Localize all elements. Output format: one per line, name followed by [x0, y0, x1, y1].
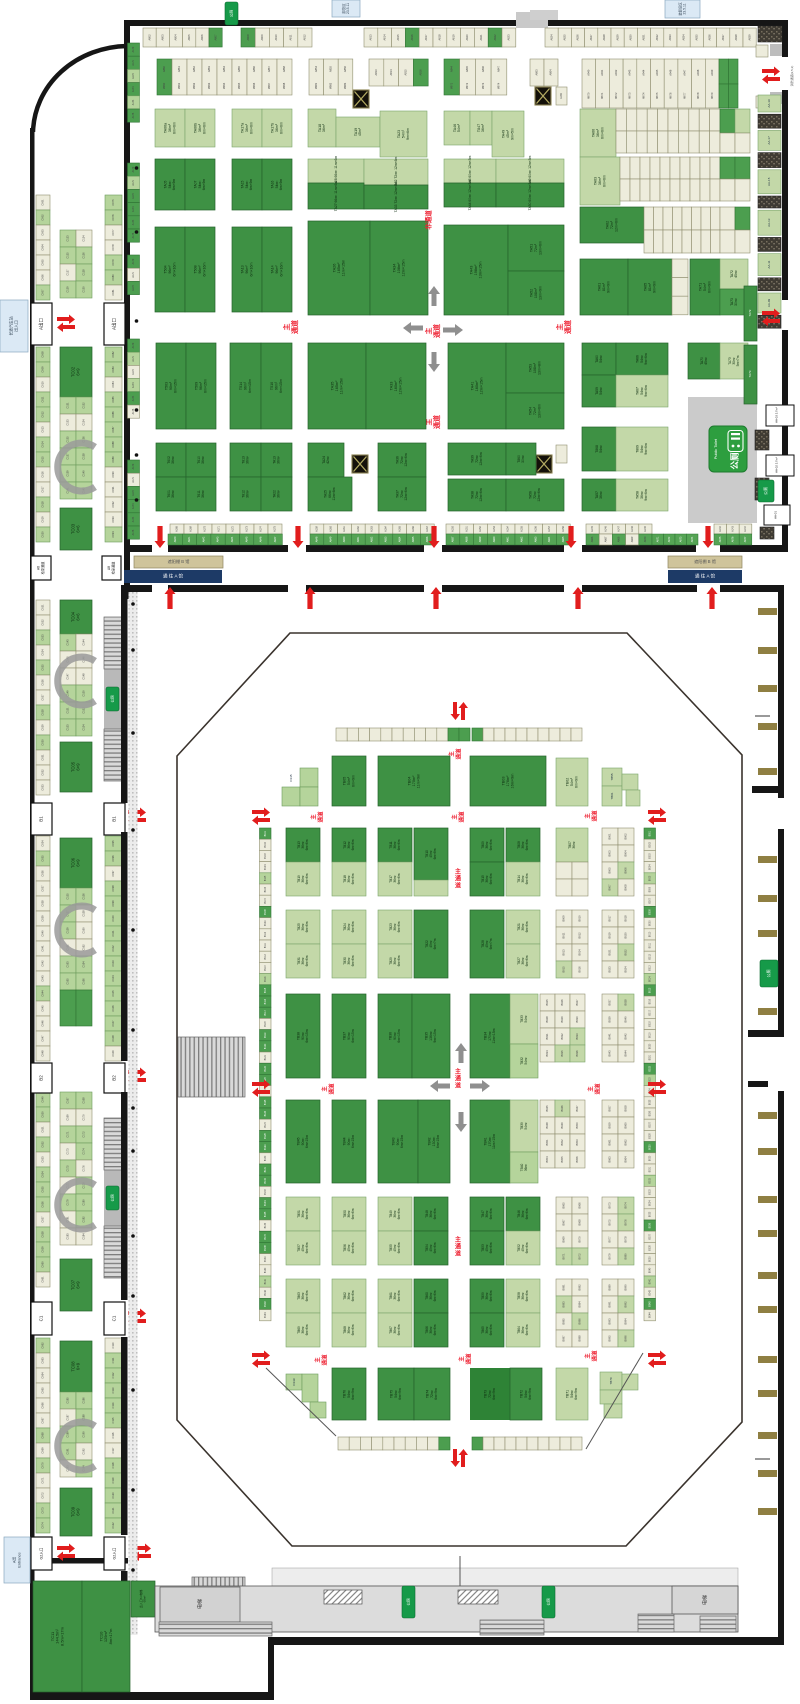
svg-text:6m×?m: 6m×?m: [433, 938, 437, 949]
svg-text:6m×16m: 6m×16m: [202, 262, 206, 276]
svg-text:T504: T504: [164, 265, 168, 273]
svg-text:36m²: 36m²: [171, 455, 175, 464]
svg-text:A663: A663: [534, 536, 537, 542]
svg-text:C075: C075: [111, 199, 115, 206]
svg-text:B073: B073: [608, 1202, 612, 1209]
svg-text:通 往 A 馆: 通 往 A 馆: [695, 573, 716, 580]
svg-text:C066: C066: [41, 1402, 45, 1409]
svg-text:C143: C143: [66, 639, 70, 646]
svg-text:C015: C015: [41, 456, 45, 463]
svg-text:B074: B074: [624, 1202, 628, 1209]
svg-text:A162: A162: [357, 526, 360, 532]
svg-text:96m²: 96m²: [199, 381, 203, 390]
svg-text:B051: B051: [545, 1139, 549, 1146]
svg-text:M991: M991: [177, 82, 181, 89]
svg-text:C023: C023: [41, 634, 45, 641]
svg-text:A942: A942: [614, 69, 618, 76]
svg-text:B106: B106: [265, 886, 267, 892]
svg-text:B122: B122: [265, 1065, 267, 1071]
svg-text:通道: 通道: [316, 811, 324, 823]
svg-text:A648: A648: [316, 536, 319, 542]
svg-text:A644: A644: [231, 536, 234, 542]
svg-text:C174: C174: [82, 1148, 86, 1155]
svg-text:B120: B120: [265, 1043, 267, 1049]
svg-text:C022: C022: [41, 619, 45, 626]
svg-text:54m²: 54m²: [599, 444, 603, 453]
svg-text:A172: A172: [132, 73, 135, 79]
svg-text:6m×6m: 6m×6m: [433, 1324, 437, 1335]
svg-text:B055: B055: [560, 1156, 564, 1163]
svg-text:C035: C035: [41, 855, 45, 862]
svg-text:B040: B040: [649, 1267, 651, 1273]
svg-text:A845: A845: [465, 65, 469, 72]
svg-text:C173: C173: [66, 1148, 70, 1155]
svg-text:A947: A947: [682, 69, 686, 76]
svg-text:B035: B035: [649, 1211, 651, 1217]
svg-text:B075: B075: [608, 1219, 612, 1226]
svg-text:6m×9m: 6m×9m: [528, 1388, 532, 1400]
svg-text:B056: B056: [575, 1156, 579, 1163]
svg-text:T508: T508: [194, 265, 198, 273]
svg-text:C058: C058: [41, 1231, 45, 1238]
svg-text:C025: C025: [41, 664, 45, 671]
svg-text:遮阳棚 B 馆: 遮阳棚 B 馆: [694, 558, 716, 565]
svg-text:通道: 通道: [320, 1354, 328, 1366]
svg-text:C031: C031: [41, 754, 45, 761]
svg-text:96m²: 96m²: [275, 265, 279, 274]
svg-text:B030: B030: [649, 1155, 651, 1161]
svg-text:C095: C095: [111, 840, 115, 847]
svg-text:B084: B084: [578, 1301, 582, 1308]
svg-text:6m×15m: 6m×15m: [248, 379, 252, 393]
svg-text:A642: A642: [202, 536, 205, 542]
svg-text:11m×15m: 11m×15m: [342, 260, 346, 277]
svg-text:A144: A144: [744, 526, 747, 532]
svg-text:B024: B024: [624, 966, 628, 973]
svg-text:B041: B041: [608, 1033, 612, 1040]
svg-text:C085: C085: [111, 396, 115, 403]
svg-text:A660: A660: [493, 536, 496, 542]
svg-text:C073: C073: [41, 1507, 45, 1514]
svg-text:B019: B019: [649, 1032, 651, 1038]
svg-text:108m²: 108m²: [397, 262, 401, 273]
svg-text:M996: M996: [252, 82, 256, 89]
svg-text:C162: C162: [82, 944, 86, 951]
svg-text:C038: C038: [41, 900, 45, 907]
svg-text:6m×6m: 6m×6m: [202, 122, 206, 134]
svg-text:B006: B006: [624, 867, 628, 874]
svg-text:C024: C024: [41, 649, 45, 656]
svg-text:TA72: TA72: [748, 309, 752, 316]
svg-text:B005: B005: [649, 875, 651, 881]
svg-text:A867: A867: [267, 65, 271, 72]
svg-text:A862: A862: [192, 65, 196, 72]
svg-text:B079: B079: [608, 1253, 612, 1260]
svg-text:C097: C097: [111, 870, 115, 877]
svg-text:AA-13: AA-13: [767, 218, 771, 227]
svg-text:B089: B089: [608, 1284, 612, 1291]
svg-text:B023: B023: [608, 966, 612, 973]
svg-text:A813: A813: [374, 69, 378, 76]
svg-text:D135: D135: [289, 774, 293, 782]
svg-text:C008: C008: [41, 351, 45, 358]
svg-text:A155: A155: [521, 526, 524, 532]
svg-text:C044: C044: [41, 990, 45, 997]
svg-text:A170: A170: [204, 526, 207, 532]
svg-text:通道: 通道: [593, 1083, 601, 1095]
svg-text:A170: A170: [132, 258, 135, 264]
svg-text:TA17b: TA17b: [271, 123, 275, 133]
svg-text:公厕: 公厕: [729, 452, 739, 470]
svg-text:B087: B087: [562, 1335, 566, 1342]
svg-text:C056: C056: [41, 1201, 45, 1208]
svg-text:B043: B043: [649, 1301, 651, 1307]
svg-text:A624: A624: [549, 34, 553, 41]
svg-text:AA-11: AA-11: [767, 260, 771, 268]
svg-text:81m²: 81m²: [648, 282, 652, 291]
svg-text:9m×6m: 9m×6m: [644, 353, 648, 365]
svg-text:6m×6m: 6m×6m: [351, 1290, 355, 1301]
svg-text:6m×6m: 6m×6m: [489, 1324, 493, 1335]
svg-text:54m²: 54m²: [524, 1015, 528, 1022]
svg-text:B111: B111: [265, 942, 267, 948]
svg-text:A168: A168: [176, 526, 179, 532]
svg-text:B114: B114: [265, 976, 267, 982]
svg-text:B126: B126: [265, 1110, 267, 1116]
svg-text:B090: B090: [624, 1284, 628, 1291]
svg-text:A173: A173: [132, 86, 135, 92]
svg-text:C153: C153: [66, 724, 70, 731]
svg-text:C067: C067: [41, 1417, 45, 1424]
svg-text:C098: C098: [111, 885, 115, 892]
svg-text:A617: A617: [424, 34, 428, 41]
svg-text:C109: C109: [111, 1050, 115, 1057]
svg-text:A151: A151: [465, 526, 468, 532]
svg-text:165m²: 165m²: [335, 380, 339, 391]
svg-text:TA13: TA13: [241, 265, 245, 273]
svg-text:6m×9m: 6m×9m: [398, 1388, 402, 1400]
svg-text:C176: C176: [82, 1165, 86, 1172]
svg-text:TA73: TA73: [748, 370, 752, 377]
svg-text:A866: A866: [252, 65, 256, 72]
svg-text:A632: A632: [655, 34, 659, 41]
svg-text:C081: C081: [111, 289, 115, 296]
svg-text:B059: B059: [608, 1122, 612, 1129]
svg-text:B052: B052: [560, 1139, 564, 1146]
svg-text:C072: C072: [41, 1492, 45, 1499]
svg-text:C055: C055: [41, 1186, 45, 1193]
svg-text:B013: B013: [649, 965, 651, 971]
svg-text:C063: C063: [41, 1357, 45, 1364]
svg-text:B065: B065: [562, 1202, 566, 1209]
svg-text:A647: A647: [274, 536, 277, 542]
svg-text:B072: B072: [578, 1253, 582, 1260]
svg-text:9m×15m: 9m×15m: [433, 1029, 437, 1042]
svg-text:C065: C065: [41, 1387, 45, 1394]
svg-text:6m×6m: 6m×6m: [351, 839, 355, 850]
svg-text:B2: B2: [39, 1075, 44, 1081]
svg-text:B069: B069: [562, 1236, 566, 1243]
svg-text:B132: B132: [265, 1177, 267, 1183]
svg-text:9m×6m: 9m×6m: [644, 443, 648, 455]
svg-text:B018: B018: [624, 915, 628, 922]
svg-text:B085: B085: [562, 1318, 566, 1325]
svg-text:TB55: TB55: [610, 773, 614, 781]
svg-text:C147: C147: [66, 673, 70, 680]
svg-text:A620: A620: [465, 34, 469, 41]
svg-text:C126: C126: [82, 252, 86, 259]
svg-text:TA17a: TA17a: [241, 123, 245, 133]
svg-text:36m²: 36m²: [596, 128, 600, 137]
svg-text:C158: C158: [82, 910, 86, 917]
svg-text:B016: B016: [649, 998, 651, 1004]
svg-text:A608: A608: [246, 34, 250, 41]
svg-text:45m²: 45m²: [506, 129, 510, 138]
svg-text:C186: C186: [82, 1397, 86, 1404]
svg-text:13m×15m: 13m×15m: [479, 262, 483, 279]
svg-text:A174: A174: [132, 99, 135, 105]
svg-text:A166: A166: [412, 526, 415, 532]
svg-text:B078: B078: [624, 1236, 628, 1243]
svg-text:Entrance: Entrance: [17, 1552, 21, 1567]
svg-text:C119: C119: [111, 1477, 115, 1484]
svg-text:AA-03 3.7m¹: AA-03 3.7m¹: [775, 407, 779, 423]
svg-text:M973: M973: [481, 82, 485, 89]
svg-text:A172: A172: [132, 193, 135, 199]
svg-text:AA-09: AA-09: [767, 299, 771, 308]
svg-text:C032: C032: [41, 769, 45, 776]
svg-text:TA35: TA35: [330, 382, 334, 391]
svg-text:A948: A948: [696, 69, 700, 76]
svg-text:C082: C082: [111, 351, 115, 358]
svg-text:通道: 通道: [563, 320, 572, 334]
svg-text:C116: C116: [111, 1432, 115, 1439]
svg-text:TA53: TA53: [529, 364, 533, 372]
svg-text:公厕: 公厕: [545, 1598, 550, 1606]
svg-text:6m×15m: 6m×15m: [173, 379, 177, 393]
svg-text:C074: C074: [41, 1522, 45, 1529]
svg-text:A167: A167: [426, 526, 429, 532]
svg-text:B028: B028: [649, 1133, 651, 1139]
svg-text:M677: M677: [682, 92, 686, 99]
svg-text:通: 通: [455, 1243, 461, 1251]
svg-text:C132: C132: [82, 402, 86, 409]
svg-text:A631: A631: [642, 34, 646, 41]
svg-text:B039: B039: [608, 1016, 612, 1023]
svg-text:通: 通: [455, 875, 461, 883]
svg-text:A175: A175: [274, 526, 277, 532]
svg-text:主: 主: [555, 324, 564, 331]
svg-text:23.5.11: 23.5.11: [346, 3, 350, 14]
svg-text:B036: B036: [649, 1222, 651, 1228]
svg-text:B030: B030: [575, 1016, 579, 1023]
svg-text:M674: M674: [641, 92, 645, 99]
svg-text:B041: B041: [649, 1278, 651, 1284]
svg-text:遮阳棚 B 馆: 遮阳棚 B 馆: [168, 558, 190, 565]
svg-text:6m×15m: 6m×15m: [305, 1029, 309, 1042]
svg-text:通道: 通道: [327, 1083, 335, 1095]
svg-text:6m×6m: 6m×6m: [305, 921, 309, 932]
svg-text:6×9: 6×9: [76, 859, 81, 867]
svg-text:C043: C043: [41, 975, 45, 982]
svg-text:36m²: 36m²: [481, 123, 485, 132]
svg-text:A677: A677: [744, 536, 747, 542]
svg-text:A604: A604: [174, 34, 178, 41]
svg-text:C154: C154: [82, 724, 86, 731]
svg-text:A664: A664: [548, 536, 551, 542]
svg-text:A675: A675: [719, 536, 722, 542]
svg-text:B033: B033: [575, 1033, 579, 1040]
svg-text:B031: B031: [649, 1166, 651, 1172]
svg-text:A646: A646: [260, 536, 263, 542]
svg-text:A610: A610: [274, 34, 278, 41]
svg-text:A638: A638: [734, 34, 738, 41]
svg-text:6×9: 6×9: [76, 763, 81, 771]
svg-text:6m×6m: 6m×6m: [351, 1242, 355, 1253]
svg-text:TA46: TA46: [453, 124, 457, 132]
svg-text:A658: A658: [465, 536, 468, 542]
svg-text:C139: C139: [66, 470, 70, 477]
svg-text:M972: M972: [465, 82, 469, 89]
svg-text:主: 主: [320, 1086, 328, 1092]
svg-text:B049: B049: [560, 1122, 564, 1129]
svg-text:AA-01: AA-01: [774, 511, 778, 519]
svg-text:B039: B039: [649, 1256, 651, 1262]
svg-text:C184: C184: [82, 1233, 86, 1240]
svg-text:C155: C155: [66, 893, 70, 900]
svg-text:6m×6m: 6m×6m: [525, 921, 529, 932]
svg-text:C029: C029: [41, 724, 45, 731]
svg-text:A174: A174: [132, 516, 135, 522]
svg-text:通道: 通道: [590, 1350, 598, 1362]
svg-text:C010: C010: [41, 381, 45, 388]
svg-text:A844: A844: [450, 65, 454, 72]
svg-text:TA61: TA61: [598, 283, 602, 291]
svg-text:6m×6m: 6m×6m: [351, 921, 355, 932]
svg-text:A173: A173: [246, 526, 249, 532]
svg-text:A628: A628: [602, 34, 606, 41]
svg-text:A865: A865: [237, 65, 241, 72]
svg-text:11m×15m: 11m×15m: [340, 378, 344, 395]
svg-text:D139: D139: [292, 1378, 296, 1386]
svg-text:9m×5m: 9m×5m: [510, 128, 514, 140]
svg-text:M994: M994: [222, 82, 226, 89]
svg-text:6m×9m: 6m×9m: [202, 179, 206, 191]
svg-text:C006: C006: [41, 274, 45, 281]
svg-text:6m×6m: 6m×6m: [433, 1290, 437, 1301]
svg-text:C086: C086: [111, 411, 115, 418]
svg-text:12m×6m: 12m×6m: [537, 488, 541, 501]
svg-text:6m×9m: 6m×9m: [574, 776, 578, 788]
svg-text:C113: C113: [111, 1387, 115, 1394]
svg-text:36m²: 36m²: [322, 123, 326, 132]
svg-text:36m²: 36m²: [276, 489, 280, 498]
svg-text:C122: C122: [111, 1522, 115, 1529]
svg-text:A662: A662: [521, 536, 524, 542]
svg-text:B1: B1: [39, 816, 44, 822]
svg-text:主: 主: [455, 868, 461, 876]
svg-text:A173: A173: [132, 206, 135, 212]
svg-text:B067: B067: [562, 1219, 566, 1226]
svg-text:公厕: 公厕: [765, 970, 771, 978]
svg-text:8.5m×17m: 8.5m×17m: [59, 1626, 64, 1646]
svg-text:C047: C047: [41, 1035, 45, 1042]
svg-text:C048: C048: [41, 1050, 45, 1057]
svg-text:6m×6m: 6m×6m: [305, 1324, 309, 1335]
svg-text:C003: C003: [41, 229, 45, 236]
svg-text:C037: C037: [41, 885, 45, 892]
svg-text:81m²: 81m²: [602, 282, 606, 291]
svg-text:M974: M974: [497, 82, 501, 89]
svg-text:A613: A613: [369, 34, 373, 41]
svg-text:13m×9m: 13m×9m: [538, 286, 542, 300]
svg-text:A171: A171: [132, 355, 135, 361]
svg-text:A174: A174: [132, 395, 135, 401]
svg-text:B002: B002: [624, 833, 628, 840]
svg-text:6m×6m: 6m×6m: [525, 1290, 529, 1301]
svg-text:A944: A944: [641, 69, 645, 76]
svg-text:C125: C125: [66, 252, 70, 259]
svg-text:B021: B021: [649, 1054, 651, 1060]
svg-text:AA-02 3.7m¹: AA-02 3.7m¹: [775, 457, 779, 473]
svg-text:B008: B008: [624, 884, 628, 891]
svg-text:B101: B101: [265, 830, 267, 836]
svg-text:主: 主: [583, 813, 591, 819]
svg-text:B144: B144: [265, 1312, 267, 1318]
svg-text:AA-19: AA-19: [767, 99, 771, 108]
svg-text:B050: B050: [575, 1122, 579, 1129]
svg-text:6m×15m: 6m×15m: [203, 379, 207, 393]
svg-text:A145: A145: [591, 526, 594, 532]
svg-text:TA41: TA41: [470, 382, 474, 391]
svg-text:B009: B009: [649, 920, 651, 926]
svg-text:TB02: TB02: [566, 778, 570, 787]
svg-text:C117: C117: [111, 1447, 115, 1454]
svg-text:M993: M993: [207, 82, 211, 89]
svg-text:36m²: 36m²: [171, 489, 175, 498]
svg-text:C026: C026: [41, 679, 45, 686]
svg-text:A656: A656: [426, 536, 429, 542]
svg-text:公厕: 公厕: [228, 10, 233, 18]
svg-text:C106: C106: [111, 1005, 115, 1012]
svg-text:A157: A157: [548, 526, 551, 532]
svg-text:54m²: 54m²: [401, 129, 405, 138]
svg-text:A607: A607: [213, 34, 217, 41]
svg-text:TA54: TA54: [529, 407, 533, 415]
svg-text:6m×6m: 6m×6m: [525, 839, 529, 850]
svg-text:180m²: 180m²: [394, 380, 398, 391]
svg-text:A623: A623: [507, 34, 511, 41]
svg-text:C051: C051: [41, 1126, 45, 1133]
svg-text:C021: C021: [41, 604, 45, 611]
svg-text:B104: B104: [265, 864, 267, 870]
svg-text:B131: B131: [265, 1166, 267, 1172]
svg-text:B038: B038: [624, 999, 628, 1006]
svg-text:6m×?m: 6m×?m: [489, 938, 493, 949]
svg-text:C062: C062: [41, 1342, 45, 1349]
svg-text:B012: B012: [649, 953, 651, 959]
svg-text:A640: A640: [174, 536, 177, 542]
svg-text:A630: A630: [628, 34, 632, 41]
svg-text:6m×6m: 6m×6m: [351, 1324, 355, 1335]
svg-text:C009: C009: [41, 366, 45, 373]
svg-text:A172: A172: [132, 285, 135, 291]
svg-text:B070: B070: [578, 1236, 582, 1243]
svg-text:C167: C167: [66, 1097, 70, 1104]
svg-text:6m×6m: 6m×6m: [525, 955, 529, 966]
svg-text:A175: A175: [132, 232, 135, 238]
svg-text:54m²: 54m²: [524, 1122, 528, 1129]
